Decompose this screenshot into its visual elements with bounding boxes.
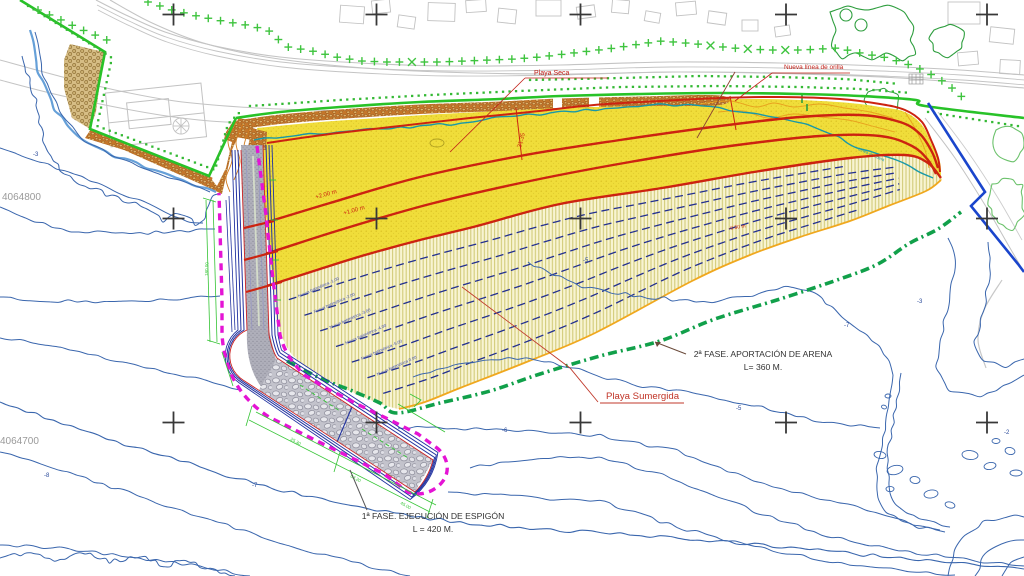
svg-text:2ª FASE. APORTACIÓN DE ARENA: 2ª FASE. APORTACIÓN DE ARENA (694, 349, 833, 359)
svg-text:180.00: 180.00 (204, 262, 209, 276)
svg-text:-3: -3 (917, 299, 923, 305)
svg-text:L = 420 M.: L = 420 M. (413, 524, 454, 534)
svg-text:4064800: 4064800 (2, 192, 41, 203)
svg-text:-8: -8 (44, 473, 50, 479)
svg-text:1ª FASE. EJECUCIÓN DE ESPIGÓN: 1ª FASE. EJECUCIÓN DE ESPIGÓN (362, 511, 505, 521)
svg-text:-7: -7 (844, 323, 850, 329)
svg-text:Nueva línea de orilla: Nueva línea de orilla (784, 64, 844, 71)
svg-text:-2: -2 (1004, 430, 1010, 436)
svg-text:L= 360 M.: L= 360 M. (744, 362, 782, 372)
svg-text:-6: -6 (502, 428, 508, 434)
svg-text:4064700: 4064700 (0, 436, 39, 447)
svg-text:-3: -3 (33, 152, 39, 158)
svg-text:-5: -5 (583, 258, 589, 264)
svg-text:-5: -5 (736, 406, 742, 412)
svg-text:Playa Seca: Playa Seca (534, 70, 570, 77)
svg-text:Playa Sumergida: Playa Sumergida (606, 391, 680, 402)
svg-text:-7: -7 (252, 483, 258, 489)
